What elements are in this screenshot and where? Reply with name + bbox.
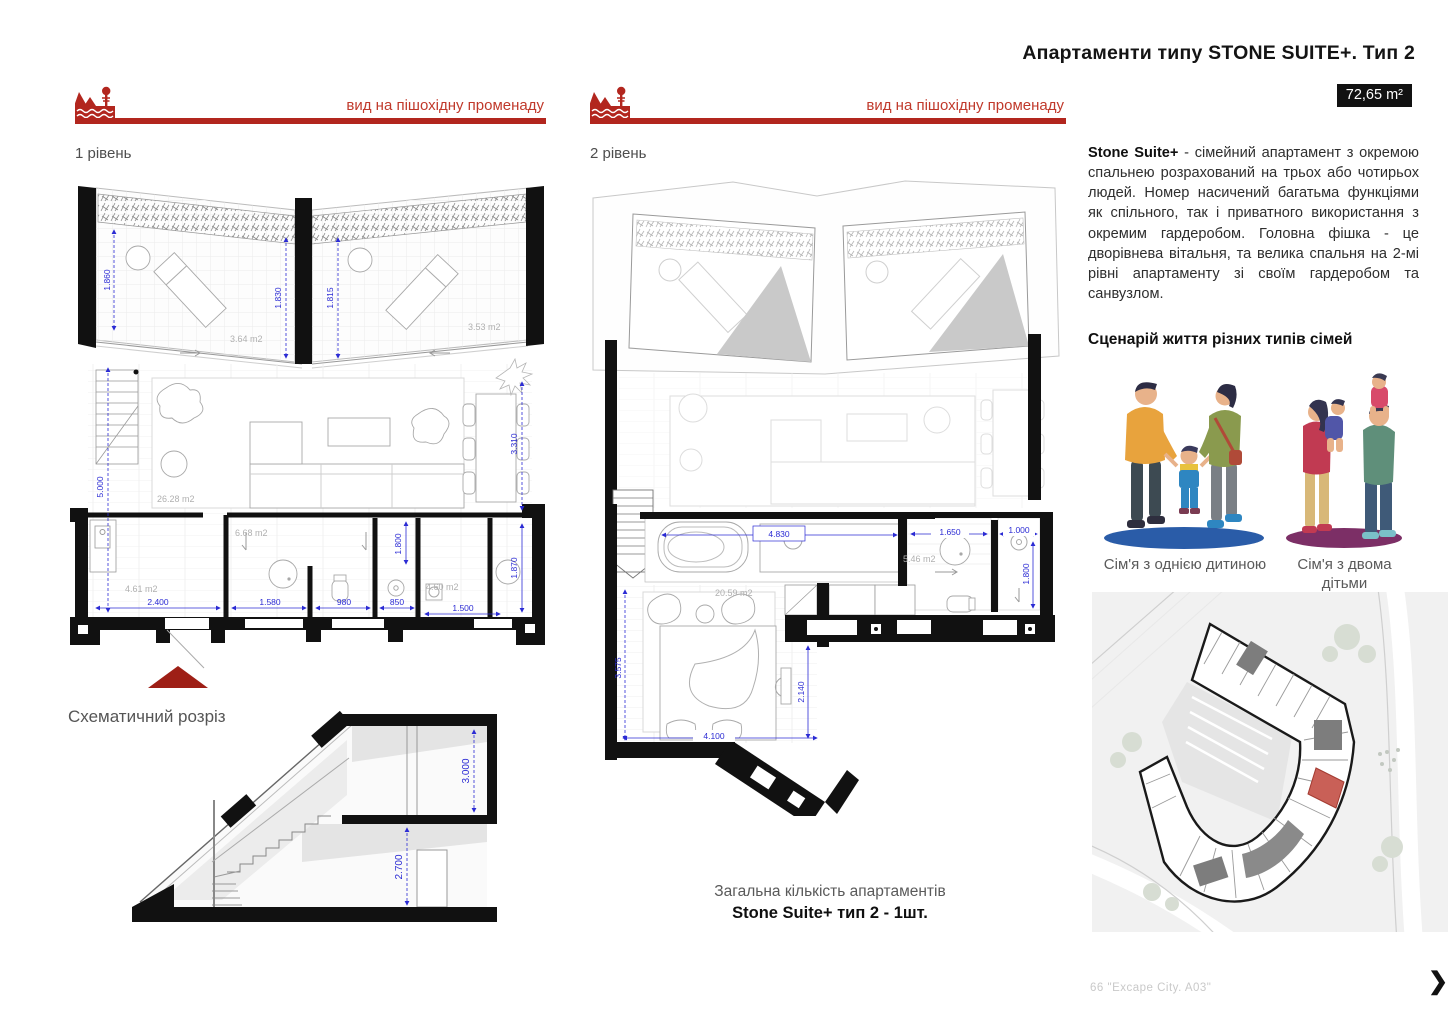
svg-text:6.68 m2: 6.68 m2: [235, 528, 268, 538]
svg-text:2.700: 2.700: [394, 854, 405, 879]
next-page-button[interactable]: ❯: [1428, 970, 1448, 994]
level2-label: 2 рівень: [590, 145, 646, 162]
svg-text:850: 850: [390, 597, 404, 607]
entrance-arrow: [148, 666, 208, 688]
svg-text:20.59 m2: 20.59 m2: [715, 588, 753, 598]
level1-label: 1 рівень: [75, 145, 131, 162]
page: Апартаменти типу STONE SUITE+. Тип 2 72,…: [0, 0, 1448, 1024]
svg-text:1.800: 1.800: [1021, 563, 1031, 585]
area-badge: 72,65 m²: [1337, 84, 1412, 107]
svg-text:4.60 m2: 4.60 m2: [426, 582, 459, 592]
schematic-section: 3.000 2.700: [62, 700, 502, 930]
closet-cells: [785, 585, 915, 615]
svg-text:1.870: 1.870: [509, 557, 519, 579]
totals-block: Загальна кількість апартаментів Stone Su…: [620, 883, 1040, 923]
section-drawing: [132, 711, 497, 922]
description-lead: Stone Suite+: [1088, 145, 1178, 161]
floor-plan-level2: 4.830 1.650 1.000 1.800 3.575 2.140 4.10…: [585, 168, 1085, 816]
svg-text:4.100: 4.100: [703, 731, 725, 741]
floor-plan-level1: 1.860 1.830 1.815 5.000 3.310 2.400 1.58…: [70, 172, 570, 697]
father-figure: [1125, 382, 1177, 528]
svg-text:5.46 m2: 5.46 m2: [903, 554, 936, 564]
family-one-child-caption: Сім'я з однією дитиною: [1100, 556, 1270, 575]
mother-with-boy-figure: [1302, 399, 1345, 533]
promenade-line: [590, 118, 1066, 124]
promenade-label: вид на пішохідну променаду: [866, 97, 1064, 114]
svg-text:4.61 m2: 4.61 m2: [125, 584, 158, 594]
terrace-left: [96, 188, 295, 362]
page-footer-note: 66 "Excape City. A03": [1090, 982, 1211, 994]
svg-text:1.580: 1.580: [259, 597, 281, 607]
pillar-left: [605, 340, 617, 504]
svg-text:1.650: 1.650: [939, 527, 961, 537]
svg-text:1.800: 1.800: [393, 533, 403, 555]
family-one-child-illustration: [1097, 362, 1272, 554]
site-plan-map: [1092, 592, 1448, 932]
scenario-heading: Сценарій життя різних типів сімей: [1088, 331, 1352, 349]
family-two-children-caption: Сім'я з двома дітьми: [1282, 556, 1407, 594]
svg-text:3.310: 3.310: [509, 433, 519, 455]
svg-text:5.000: 5.000: [95, 476, 105, 498]
description-body: - сімейний апартамент з окремою спальнею…: [1088, 145, 1419, 302]
terrace-right: [312, 188, 528, 362]
pillar-right: [1028, 334, 1041, 500]
svg-text:1.815: 1.815: [325, 287, 335, 309]
family-two-children-illustration: [1283, 372, 1405, 554]
mother-figure: [1199, 384, 1242, 528]
svg-text:3.53 m2: 3.53 m2: [468, 322, 501, 332]
svg-text:980: 980: [337, 597, 351, 607]
svg-text:3.000: 3.000: [461, 758, 472, 783]
svg-text:1.000: 1.000: [1008, 525, 1030, 535]
promenade-label: вид на пішохідну променаду: [346, 97, 544, 114]
svg-text:3.575: 3.575: [613, 657, 623, 679]
svg-text:1.500: 1.500: [452, 603, 474, 613]
svg-text:3.64 m2: 3.64 m2: [230, 334, 263, 344]
svg-text:26.28 m2: 26.28 m2: [157, 494, 195, 504]
promenade-header-2: вид на пішохідну променаду: [590, 86, 1066, 124]
apartment-description: Stone Suite+ - сімейний апартамент з окр…: [1088, 143, 1419, 304]
level-below-ghost: [593, 181, 1059, 508]
svg-text:4.830: 4.830: [768, 529, 790, 539]
svg-text:2.140: 2.140: [796, 681, 806, 703]
svg-text:1.860: 1.860: [102, 269, 112, 291]
promenade-line: [75, 118, 546, 124]
totals-line2: Stone Suite+ тип 2 - 1шт.: [620, 904, 1040, 923]
promenade-header-1: вид на пішохідну променаду: [75, 86, 546, 124]
totals-line1: Загальна кількість апартаментів: [620, 883, 1040, 901]
stairs: [96, 370, 139, 465]
svg-text:2.400: 2.400: [147, 597, 169, 607]
father-with-girl-figure: [1362, 373, 1396, 539]
svg-text:1.830: 1.830: [273, 287, 283, 309]
page-title: Апартаменти типу STONE SUITE+. Тип 2: [1022, 42, 1415, 65]
